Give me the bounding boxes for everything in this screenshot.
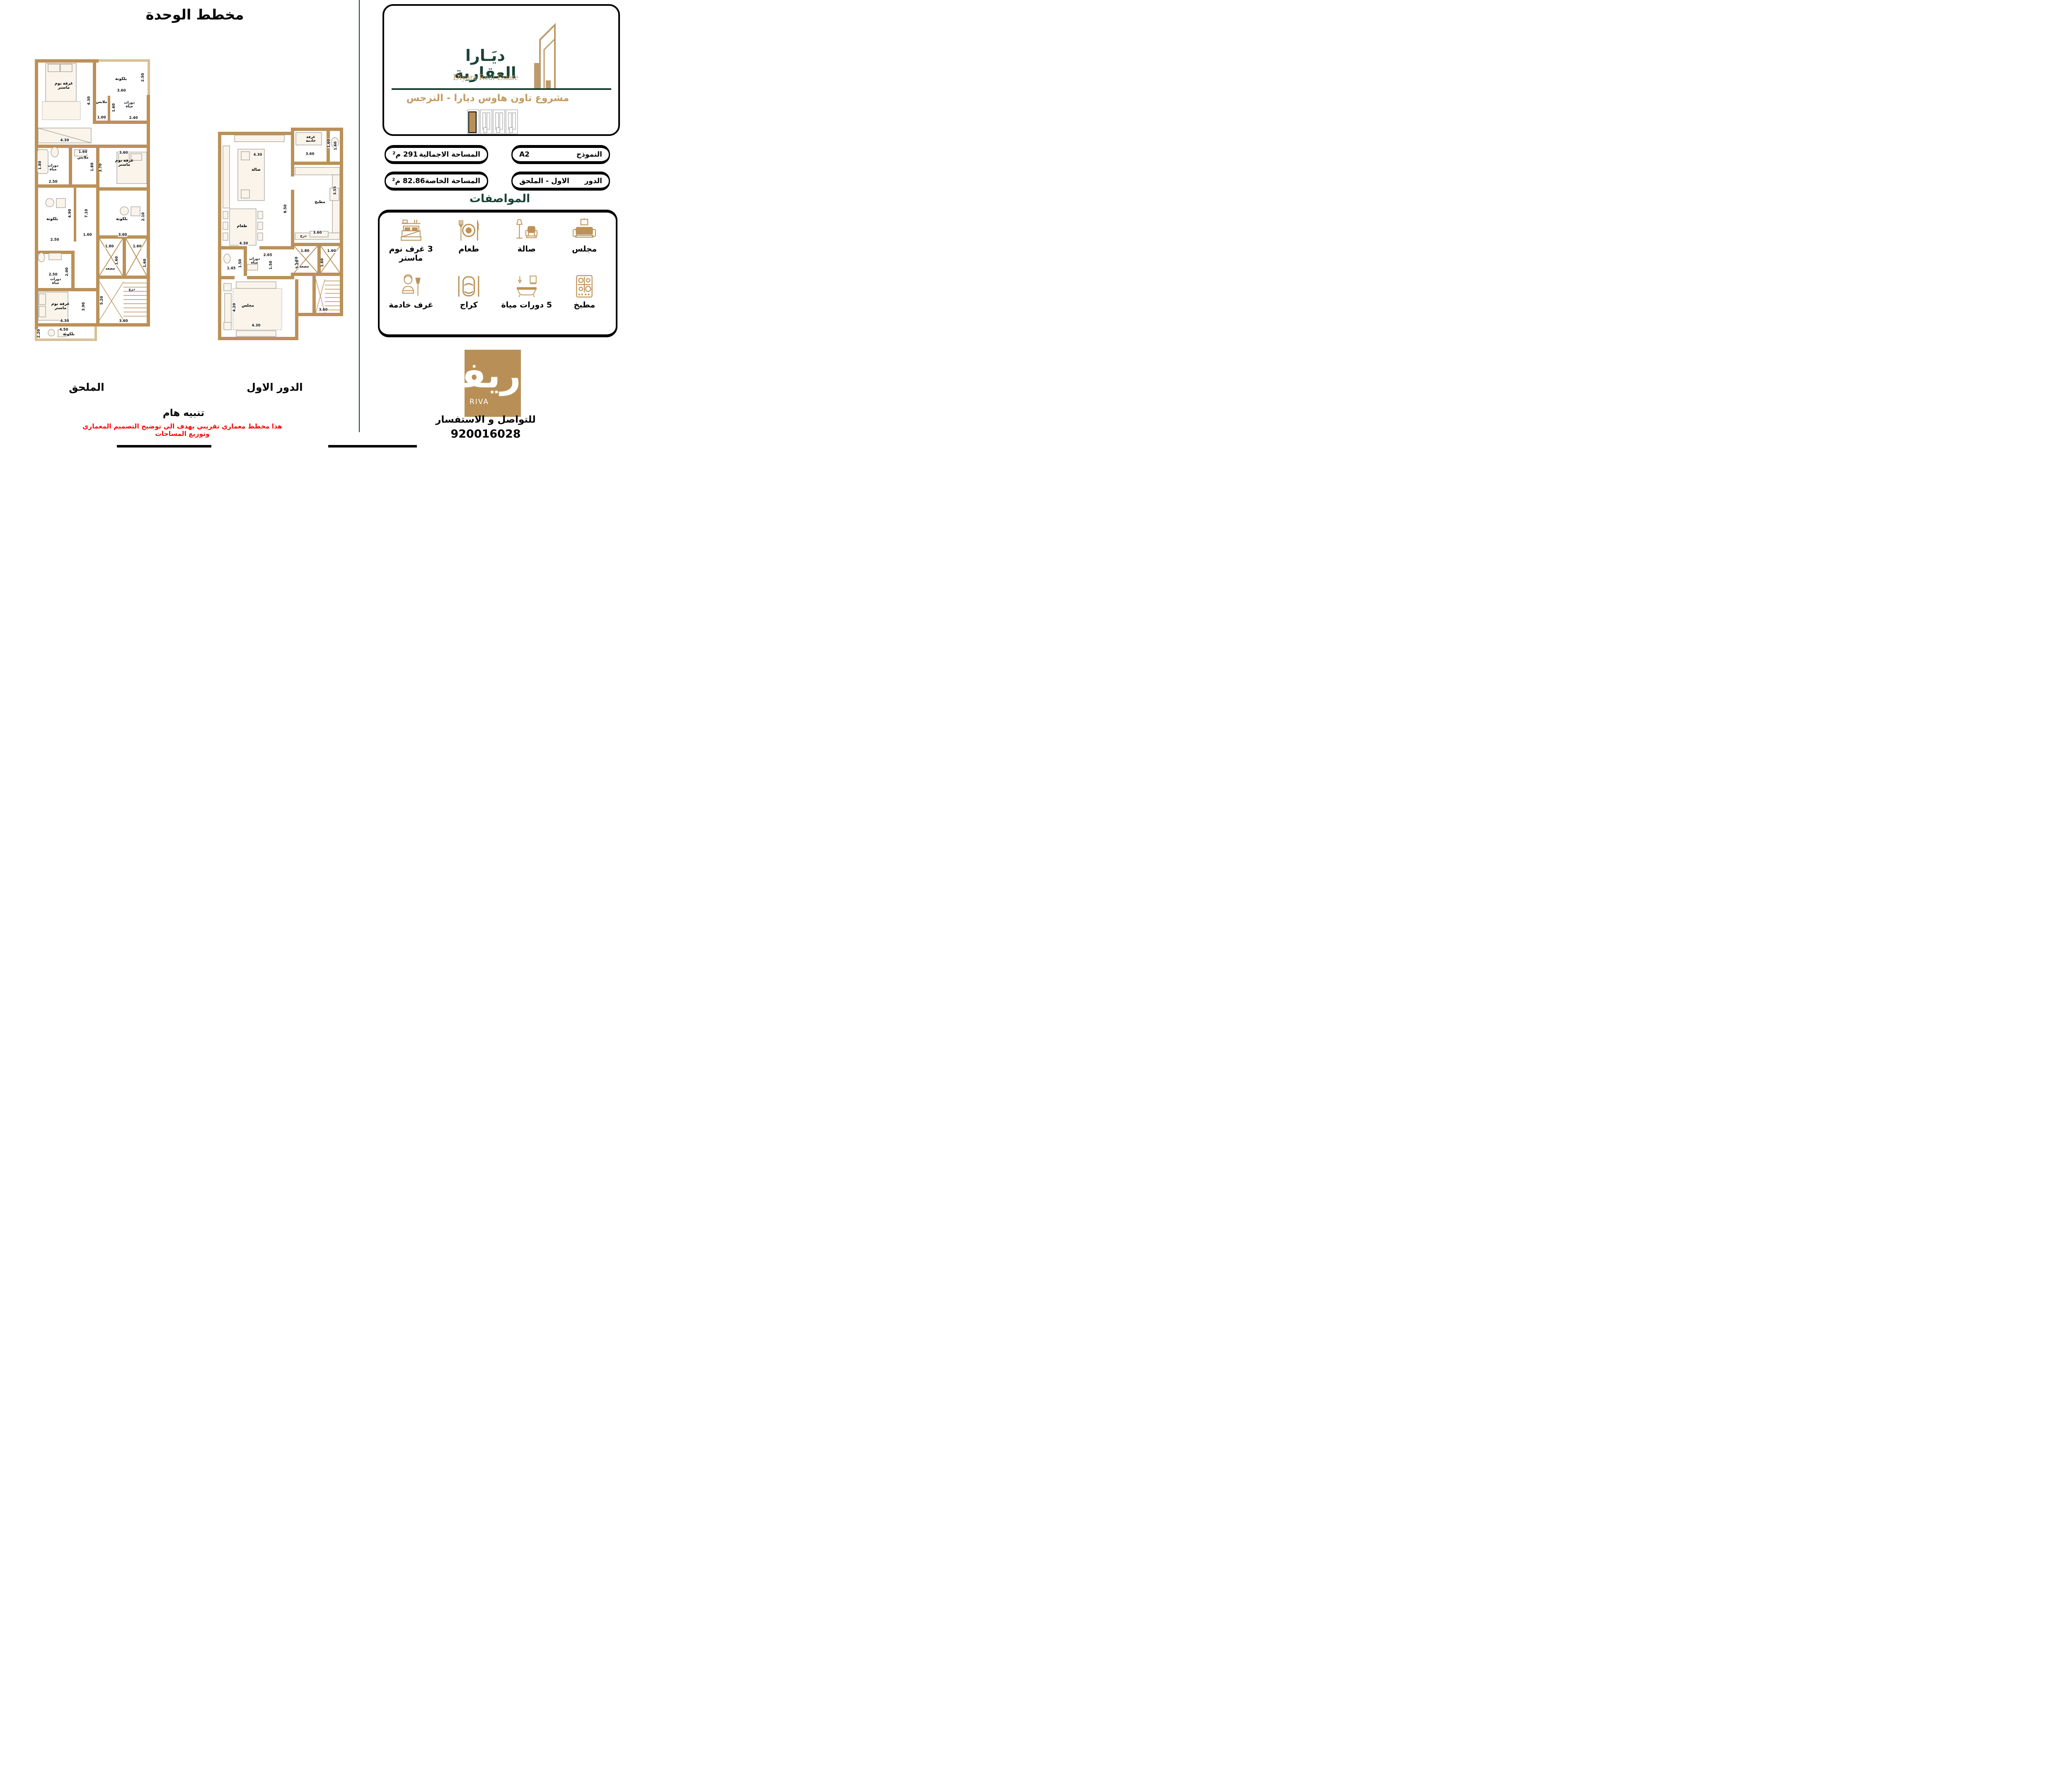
room-label: بلكونة	[63, 332, 75, 336]
specs-heading: المواصفات	[454, 192, 545, 205]
dimension-label: 2.00	[65, 267, 69, 277]
dimension-label: 1.50	[269, 261, 273, 270]
room-label: دورات مياة	[50, 278, 61, 285]
dimension-label: 1.80	[105, 245, 114, 249]
dimension-label: 4.30	[87, 96, 91, 106]
spec-garage-label: كراج	[460, 301, 478, 310]
dimension-label: 1.45	[227, 267, 236, 271]
room-label: درج	[300, 235, 306, 238]
floor-plan-annex: غرفة نوم ماستربلكونةملابسدورات مياةغرفة …	[35, 59, 150, 341]
spec-maid: غرف خادمة	[382, 274, 440, 330]
pill-model-label: النموذج	[576, 150, 602, 159]
pill-floor-label: الدور	[585, 177, 602, 185]
dimension-label: 3.55	[334, 186, 337, 196]
spec-kitchen: مطبخ	[556, 274, 614, 330]
dimension-label: 1.00	[97, 116, 107, 120]
room-label: مصعد	[299, 265, 309, 269]
dimension-label: 5.20	[100, 296, 104, 305]
room-label: بلكونة	[115, 77, 127, 81]
garage-car-icon	[457, 274, 481, 298]
dimension-label: 1.60	[327, 139, 331, 148]
pill-total-area-label: المساحة الاجمالية	[419, 150, 480, 159]
spec-bedrooms-label: 3 غرف نوم ماستر	[389, 245, 433, 263]
dimension-label: 4.90	[68, 209, 72, 218]
contact-label: للتواصل و الاستفسار	[415, 414, 556, 425]
room-label: دورات مياة	[249, 257, 260, 265]
dimension-label: 4.30	[239, 242, 249, 246]
spec-hall-label: صالة	[518, 245, 536, 254]
dimension-label: 3.60	[319, 308, 328, 312]
vertical-divider	[359, 0, 360, 432]
page-title: مخطط الوحدة	[133, 7, 257, 23]
room-label: درج	[128, 288, 135, 292]
notice-body: هذا مخطط معماري تقريبي يهدف الي توضيح ال…	[75, 423, 290, 438]
brand-name-english: Diyara Real Estate	[430, 72, 542, 82]
room-label: بلكونة	[116, 217, 128, 221]
dimension-label: 1.50	[239, 259, 242, 268]
dimension-label: 7.10	[85, 209, 89, 218]
brand-card: ديَـارا العقارية Diyara Real Estate مشرو…	[382, 4, 620, 136]
room-label: غرفة نوم ماستر	[51, 302, 70, 310]
spec-garage: كراج	[440, 274, 498, 330]
dimension-label: 1.60	[143, 259, 147, 268]
spec-maid-label: غرف خادمة	[389, 301, 433, 310]
dimension-label: 1.80	[300, 249, 310, 253]
brand-divider-rule	[392, 88, 611, 90]
dimension-label: 8.50	[284, 204, 288, 214]
kitchen-stove-icon	[572, 274, 596, 298]
notice-title: تنبيه هام	[142, 408, 225, 418]
dimension-label: 2.50	[48, 273, 58, 277]
room-label: بلكونة	[46, 217, 58, 221]
pill-private-area-value: 82.86 م²	[392, 177, 425, 185]
room-label: غرفة نوم ماستر	[55, 82, 73, 90]
floor-plan-first-floor: صالةغرفة خادمةمطبخمصعددرجطعامدورات مياةم…	[218, 128, 343, 340]
brochure-page: مخطط الوحدة	[0, 0, 630, 447]
spec-bedrooms: 3 غرف نوم ماستر	[382, 218, 440, 274]
dimension-label: 3.60	[313, 231, 322, 235]
spec-bathrooms-label: 5 دورات مياة	[501, 301, 552, 310]
dimension-label: 2.50	[141, 73, 145, 82]
dimension-label: 3.60	[118, 233, 128, 237]
dimension-label: 1.60	[78, 150, 88, 154]
bottom-bar-left	[117, 445, 211, 447]
dimension-label: 3.70	[99, 163, 103, 173]
dimension-label: 2.50	[50, 238, 60, 242]
project-name: مشروع تاون هاوس ديارا - النرجس	[397, 93, 579, 104]
dimension-label: 2.50	[48, 180, 58, 184]
dimension-label: 3.60	[119, 151, 128, 155]
dimension-label: 3.60	[305, 152, 315, 156]
bathtub-icon	[515, 274, 539, 298]
dimension-label: 1.60	[334, 141, 338, 151]
dimension-label: 1.60	[321, 258, 324, 268]
dimension-label: 4.50	[59, 328, 69, 332]
pill-model-value: A2	[519, 150, 530, 159]
dimension-label: 4.30	[60, 139, 70, 143]
dimension-label: 1.60	[115, 256, 119, 266]
room-label: غرفة خادمة	[306, 135, 316, 143]
spec-dining-label: طعام	[458, 245, 479, 254]
room-label: صالة	[252, 168, 261, 172]
spec-dining: طعام	[440, 218, 498, 274]
room-label: دورات مياة	[48, 164, 58, 172]
pill-floor: الدور الاول - الملحق	[511, 172, 610, 191]
dining-cutlery-icon	[457, 218, 481, 242]
pill-model: النموذج A2	[511, 145, 610, 164]
riva-logo-latin: RIVA	[470, 398, 489, 406]
room-label: ملابس	[77, 156, 89, 160]
room-label: طعام	[237, 224, 247, 228]
dimension-label: 4.20	[233, 303, 237, 312]
riva-logo-arabic: ريفا	[465, 351, 521, 400]
dimension-label: 2.40	[129, 116, 138, 120]
hall-lamp-armchair-icon	[515, 218, 539, 242]
pill-private-area: المساحة الخاصة 82.86 م²	[385, 172, 488, 191]
dimension-label: 1.60	[327, 249, 336, 253]
dimension-label: 1.80	[39, 161, 42, 170]
spec-majlis: مجلس	[556, 218, 614, 274]
room-label: مطبخ	[315, 200, 325, 204]
pill-total-area: المساحة الاجمالية 291 م²	[385, 145, 488, 164]
contact-phone: 920016028	[415, 428, 556, 440]
first-floor-caption: الدور الاول	[246, 381, 304, 393]
master-bedroom-icon	[399, 218, 423, 242]
dimension-label: 1.80	[91, 162, 94, 172]
dimension-label: 4.30	[252, 324, 261, 328]
dimension-label: 5.20	[296, 260, 300, 269]
dimension-label: 2.65	[263, 254, 273, 257]
spec-bathrooms: 5 دورات مياة	[498, 274, 556, 330]
pill-total-area-value: 291 م²	[392, 150, 418, 159]
room-label: غرفة نوم ماستر	[115, 159, 133, 167]
townhouse-units-diagram	[467, 109, 518, 134]
dimension-label: 3.60	[119, 319, 128, 323]
dimension-label: 1.60	[83, 233, 92, 237]
maid-icon	[399, 274, 423, 298]
dimension-label: 1.60	[112, 103, 116, 113]
spec-majlis-label: مجلس	[572, 245, 597, 254]
specs-card: مجلس صالة	[378, 210, 617, 337]
majlis-sofa-icon	[572, 218, 596, 242]
spec-kitchen-label: مطبخ	[574, 301, 595, 310]
room-label: مجلس	[242, 304, 254, 308]
dimension-label: 2.20	[37, 329, 41, 339]
bottom-bar-right	[328, 445, 417, 447]
dimension-label: 2.10	[142, 212, 145, 222]
pill-private-area-label: المساحة الخاصة	[425, 177, 480, 185]
dimension-label: 4.30	[253, 153, 263, 157]
dimension-label: 3.60	[117, 89, 126, 93]
dimension-label: 4.30	[60, 319, 70, 323]
room-label: مصعد	[105, 267, 115, 271]
room-label: ملابس	[96, 101, 107, 104]
room-label: دورات مياة	[124, 101, 135, 109]
riva-logo: ريفا RIVA	[465, 350, 521, 417]
spec-hall: صالة	[498, 218, 556, 274]
annex-caption: الملحق	[62, 381, 111, 393]
dimension-label: 3.90	[82, 302, 86, 312]
pill-floor-value: الاول - الملحق	[519, 177, 569, 185]
dimension-label: 1.60	[133, 245, 142, 249]
